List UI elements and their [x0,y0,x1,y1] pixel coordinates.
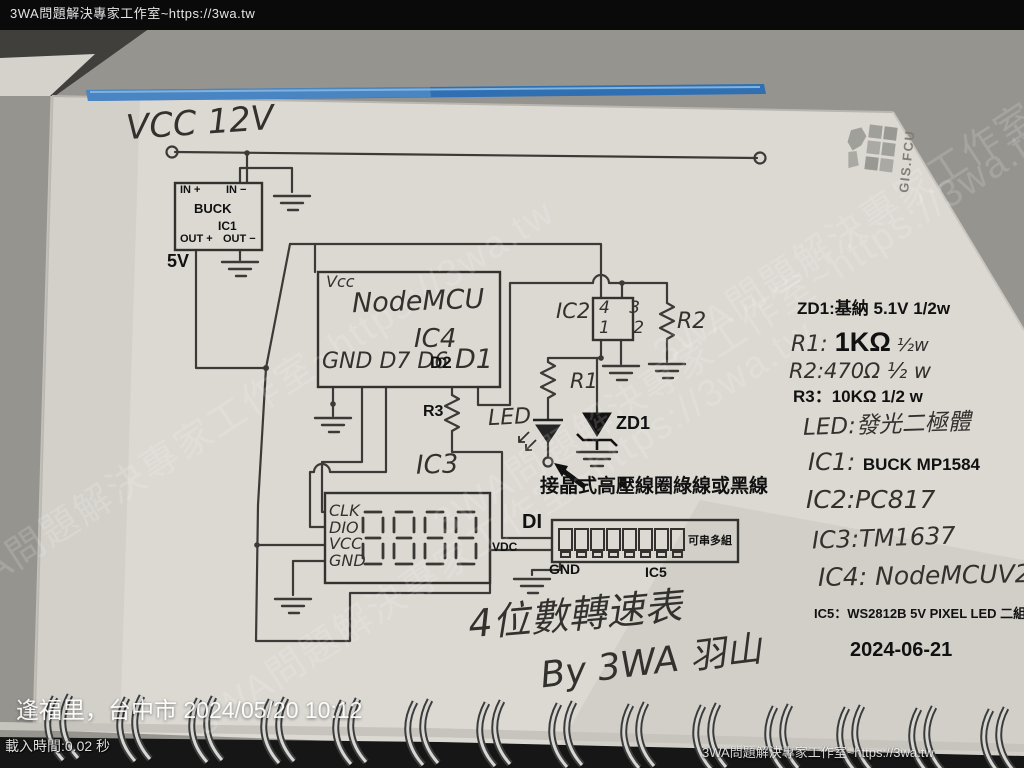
zd1-label: ZD1 [616,414,650,433]
note-ic4: IC4: NodeMCUV2 [818,561,1024,591]
nodemcu-pin-vcc: Vcc [326,274,355,291]
nodemcu-name: NodeMCU [352,286,485,319]
buck-pin-out-minus: OUT − [223,234,256,246]
buck-name: BUCK [194,202,232,216]
note-r2: R2:470Ω ½ w [789,360,931,382]
note-ic3: IC3:TM1637 [812,524,956,554]
note-ic1-value: BUCK MP1584 [863,455,980,474]
r3-label: R3 [423,404,443,421]
top-watermark-text: 3WA問題解決專家工作室~https://3wa.tw [10,7,255,21]
date-stamp: 2024-06-21 [850,640,952,661]
opto-pins-top: 4 3 [599,300,647,318]
nodemcu-pin-d2: D2 [430,354,452,372]
buck-ref: IC1 [218,220,237,233]
note-r1-suffix: ½w [891,335,929,356]
note-led: LED:發光二極體 [803,410,972,440]
notebook-photo: 3WA問題解決專家工作室~https://3wa.tw 3WA問題解決專家工作室… [0,0,1024,768]
note-r3: R3：10KΩ 1/2 w [793,388,923,406]
buck-pin-in-plus: IN + [180,185,200,197]
strip-pin-di: DI [522,512,542,533]
coil-note: 接晶式高壓線圈綠線或黑線 [540,477,768,497]
buck-pin-in-minus: IN − [226,185,246,197]
strip-pin-vdc: VDC [492,541,517,554]
bottom-right-watermark: 3WA問題解決專家工作室~https://3wa.tw [702,746,934,760]
note-zd1: ZD1:基納 5.1V 1/2w [797,300,950,318]
location-timestamp-overlay: 逢福里，台中市 2024/05/20 10:12 [16,698,362,722]
rail-5v-label: 5V [167,252,189,271]
note-ic5: IC5：WS2812B 5V PIXEL LED 二組 [814,607,1024,621]
load-time-overlay: 載入時間:0.02 秒 [5,739,110,754]
opto-ref: IC2 [556,300,590,322]
top-watermark-bar: 3WA問題解決專家工作室~https://3wa.tw [0,0,1024,30]
strip-ref: IC5 [645,565,667,580]
r1-label: R1 [570,370,598,392]
display-pins: CLK DIO VCC GND [329,503,366,569]
note-r1: R1: 1KΩ ½w [791,328,929,356]
display-ref: IC3 [416,451,459,480]
buck-pin-out-plus: OUT + [180,234,213,246]
note-ic1: IC1: BUCK MP1584 [808,450,980,475]
strip-chain-note: 可串多組 [688,536,732,548]
note-ic2: IC2:PC817 [806,487,935,513]
note-r1-prefix: R1: [791,332,835,357]
opto-pins-bottom: 1 2 [599,320,653,338]
note-r1-value: 1KΩ [835,327,891,357]
r2-label: R2 [677,310,706,333]
nodemcu-pin-d1: D1 [455,346,493,374]
strip-pin-gnd: GND [549,562,580,577]
led-label: LED [487,405,531,430]
note-ic1-prefix: IC1: [808,448,863,476]
